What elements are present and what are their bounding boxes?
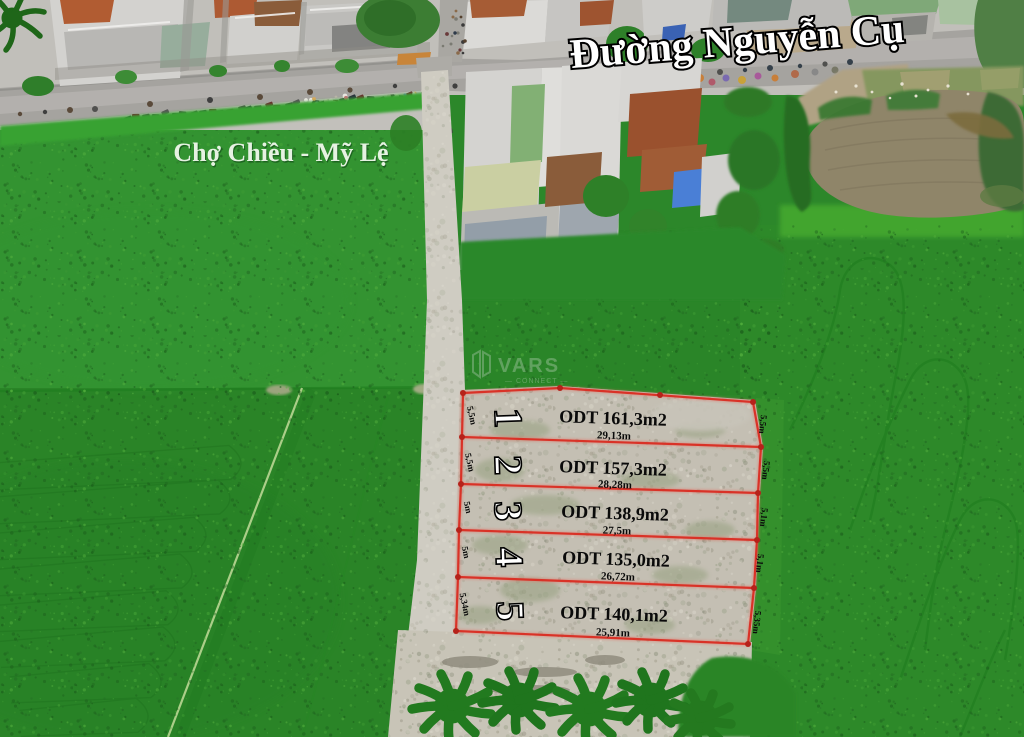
svg-text:ODT 140,1m2: ODT 140,1m2 [560, 602, 668, 626]
svg-text:5: 5 [488, 600, 534, 622]
svg-text:26,72m: 26,72m [601, 570, 635, 583]
svg-text:VARS: VARS [498, 355, 560, 377]
svg-text:5,5m: 5,5m [760, 460, 772, 480]
svg-text:5,1m: 5,1m [754, 553, 766, 573]
svg-text:ODT 135,0m2: ODT 135,0m2 [562, 547, 670, 571]
svg-text:5,1m: 5,1m [758, 507, 770, 527]
svg-text:3: 3 [486, 500, 532, 522]
svg-text:ODT 161,3m2: ODT 161,3m2 [559, 406, 667, 430]
svg-text:5,5m: 5,5m [757, 414, 769, 434]
svg-text:1: 1 [486, 407, 532, 429]
svg-text:Chợ Chiều - Mỹ Lệ: Chợ Chiều - Mỹ Lệ [173, 138, 388, 167]
svg-text:27,5m: 27,5m [603, 525, 632, 538]
svg-text:ODT 157,3m2: ODT 157,3m2 [559, 456, 667, 480]
svg-text:29,13m: 29,13m [597, 429, 631, 442]
svg-text:25,91m: 25,91m [596, 626, 630, 639]
svg-text:2: 2 [486, 454, 532, 476]
svg-text:ODT 138,9m2: ODT 138,9m2 [561, 501, 669, 525]
svg-text:— CONNECT —: — CONNECT — [505, 378, 568, 385]
svg-text:4: 4 [487, 546, 533, 568]
svg-text:28,28m: 28,28m [598, 478, 632, 491]
